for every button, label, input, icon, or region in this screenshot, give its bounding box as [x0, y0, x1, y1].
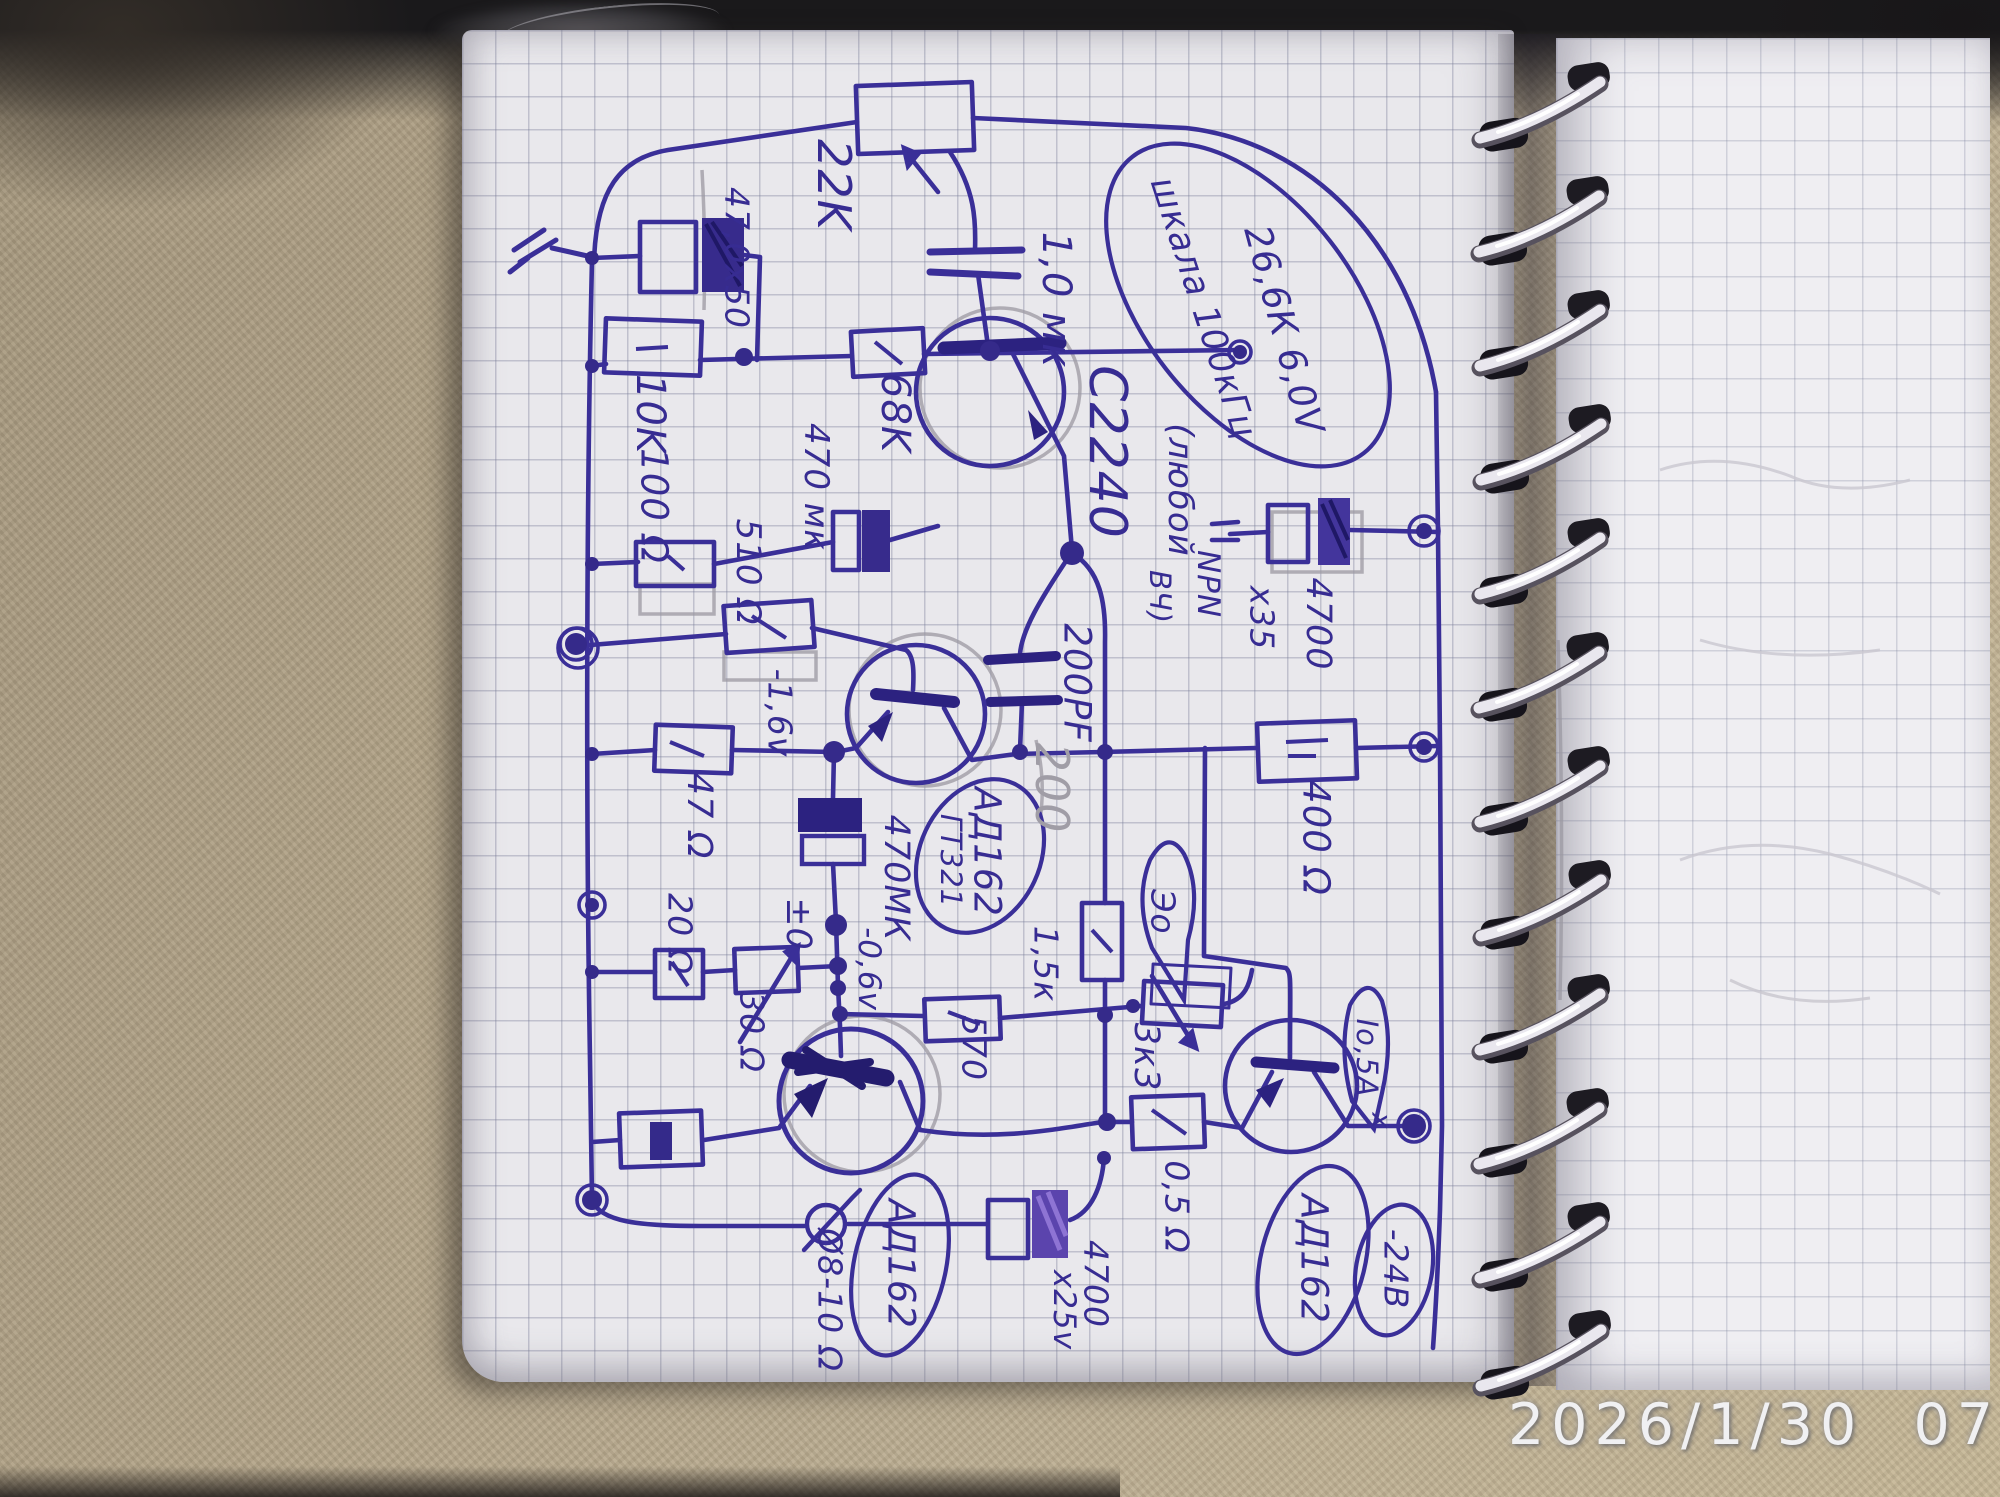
schematic-drawing — [0, 0, 2000, 1497]
spiral-binding — [1477, 61, 1613, 1402]
label-q1-type: C2240 — [1077, 365, 1137, 539]
cap-1uk-plates — [930, 250, 1022, 276]
label-q1-note-3: ВЧ) — [1143, 570, 1177, 624]
label-r510: 510 Ω — [728, 519, 768, 626]
resistor-400 — [1257, 720, 1357, 781]
cap-470uk-plate-b — [862, 510, 890, 572]
resistor-47 — [654, 725, 733, 774]
label-v-minus1-6: -1,6v — [761, 669, 800, 758]
label-cap-200pf: 200PF — [1056, 623, 1099, 742]
pencil-bleedthrough — [1660, 461, 1940, 1001]
label-cap-47uf: 47,0х50 — [718, 187, 757, 329]
photo-of-notebook: 22K 47,0х50 10K 100 Ω 68K 470 мк 510 Ω 1… — [0, 0, 2000, 1497]
label-r570: 570 — [955, 1015, 994, 1081]
label-r20: 20 Ω — [661, 893, 700, 975]
cap-470uk-plate-a — [833, 512, 859, 570]
label-200-pencil: 200 — [1025, 743, 1079, 834]
fuse-element — [650, 1122, 672, 1160]
pot-22k-body — [856, 82, 974, 154]
label-cap-4700-25: 4700 — [1077, 1240, 1116, 1328]
label-pot-22k: 22K — [807, 139, 861, 231]
label-r1k5: 1,5к — [1027, 926, 1066, 1002]
q2-base-bar — [876, 694, 954, 702]
label-q4-type: АД162 — [880, 1199, 923, 1329]
label-q1-note-1: (любой — [1160, 423, 1200, 556]
label-q3-type: АД162 — [1293, 1194, 1336, 1324]
label-v-minus0-6: -0,6v — [851, 927, 887, 1011]
label-v-plusminus0: ±0 — [778, 897, 818, 951]
label-r100: 100 Ω — [633, 448, 676, 564]
q2-emitter-arrow — [868, 712, 893, 742]
q3-base-bar — [1256, 1062, 1334, 1068]
label-r0-5: 0,5 Ω — [1158, 1160, 1197, 1253]
label-cap-1uk: 1,0 мк — [1033, 232, 1079, 369]
label-cap-470MK: 470МК — [876, 815, 916, 942]
label-cap-4700-25v: х25v — [1046, 1270, 1082, 1350]
label-pot-30: 30 Ω — [733, 991, 772, 1073]
label-pot-3k3: 3к3 — [1126, 1023, 1166, 1092]
label-v-minus24: -24В — [1377, 1229, 1416, 1310]
label-r68k: 68K — [872, 373, 918, 453]
label-i-0-5a: Iо,5А — [1350, 1019, 1384, 1098]
label-cap-4700-35: 4700 — [1298, 577, 1338, 670]
label-r400: 400 Ω — [1295, 780, 1338, 896]
label-cap-4700-35v: х35 — [1243, 586, 1282, 651]
transistor-q2-symbol — [847, 645, 985, 783]
label-q2-type-1: АД162 — [966, 787, 1009, 917]
label-q2-type-2: ГТ321 — [934, 814, 968, 908]
camera-timestamp: 2026/1/30 07:47 — [1508, 1392, 2000, 1458]
label-cap-470uk: 470 мк — [796, 423, 836, 551]
label-speaker: Ø8-10 Ω — [811, 1228, 850, 1372]
cap-4700-25-plate-a — [988, 1200, 1028, 1258]
label-stray-x: х — [1366, 1113, 1397, 1130]
label-r47: 47 Ω — [679, 773, 719, 859]
cap-470MK-plate-b — [802, 836, 864, 864]
wires — [578, 118, 1442, 1348]
label-r10k: 10K — [627, 374, 673, 454]
cap-470MK-plate-a — [798, 798, 862, 832]
q3-emitter-arrow — [1256, 1078, 1284, 1108]
ground-icon — [510, 230, 592, 272]
label-eo: Эо — [1144, 889, 1183, 934]
label-q1-note-2: NPN — [1190, 550, 1226, 618]
cap-47uf-plate-a — [640, 222, 696, 292]
